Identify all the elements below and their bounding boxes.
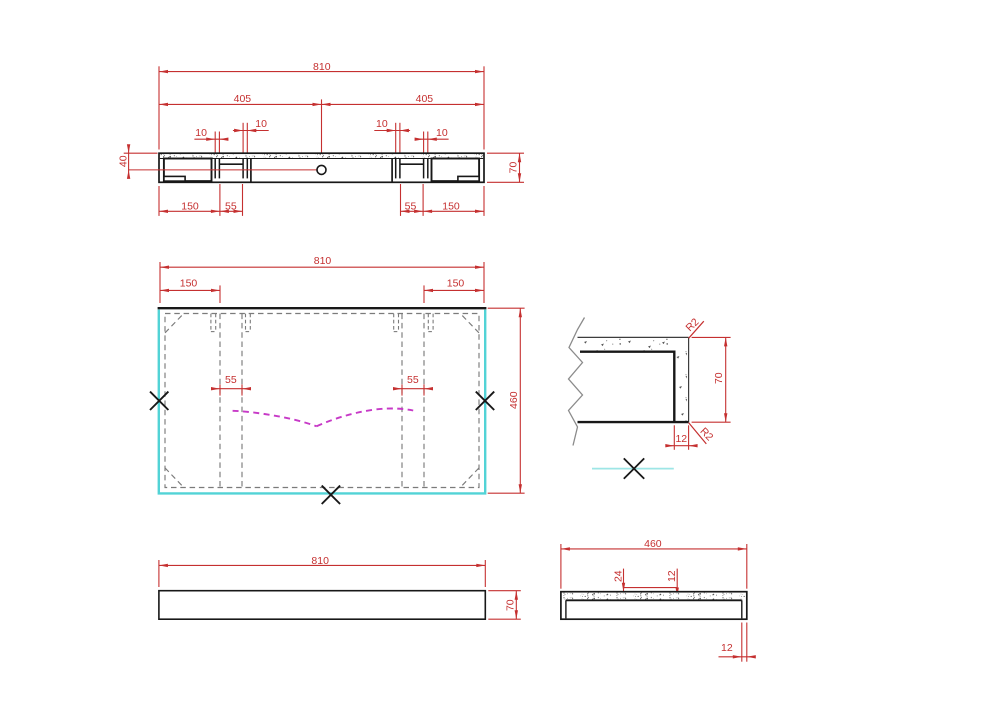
svg-text:70: 70 [507,162,519,174]
svg-text:12: 12 [721,642,733,654]
svg-text:12: 12 [666,570,678,582]
svg-text:810: 810 [314,255,332,267]
svg-text:460: 460 [644,538,662,550]
svg-text:10: 10 [195,127,207,139]
svg-text:55: 55 [225,201,237,213]
svg-text:70: 70 [504,599,516,611]
svg-text:55: 55 [407,374,419,386]
svg-text:150: 150 [180,278,198,290]
svg-text:40: 40 [117,155,129,167]
svg-text:24: 24 [612,570,624,582]
svg-text:70: 70 [713,372,725,384]
svg-text:810: 810 [311,555,329,567]
svg-text:405: 405 [234,93,252,105]
svg-text:10: 10 [376,118,388,130]
svg-text:12: 12 [675,433,687,445]
svg-text:460: 460 [508,391,520,409]
svg-text:150: 150 [447,278,465,290]
svg-text:10: 10 [436,127,448,139]
svg-text:55: 55 [225,374,237,386]
svg-text:810: 810 [313,61,331,73]
svg-text:55: 55 [405,201,417,213]
svg-text:10: 10 [255,118,267,130]
svg-text:405: 405 [416,93,434,105]
svg-text:150: 150 [181,201,199,213]
svg-text:150: 150 [442,201,460,213]
